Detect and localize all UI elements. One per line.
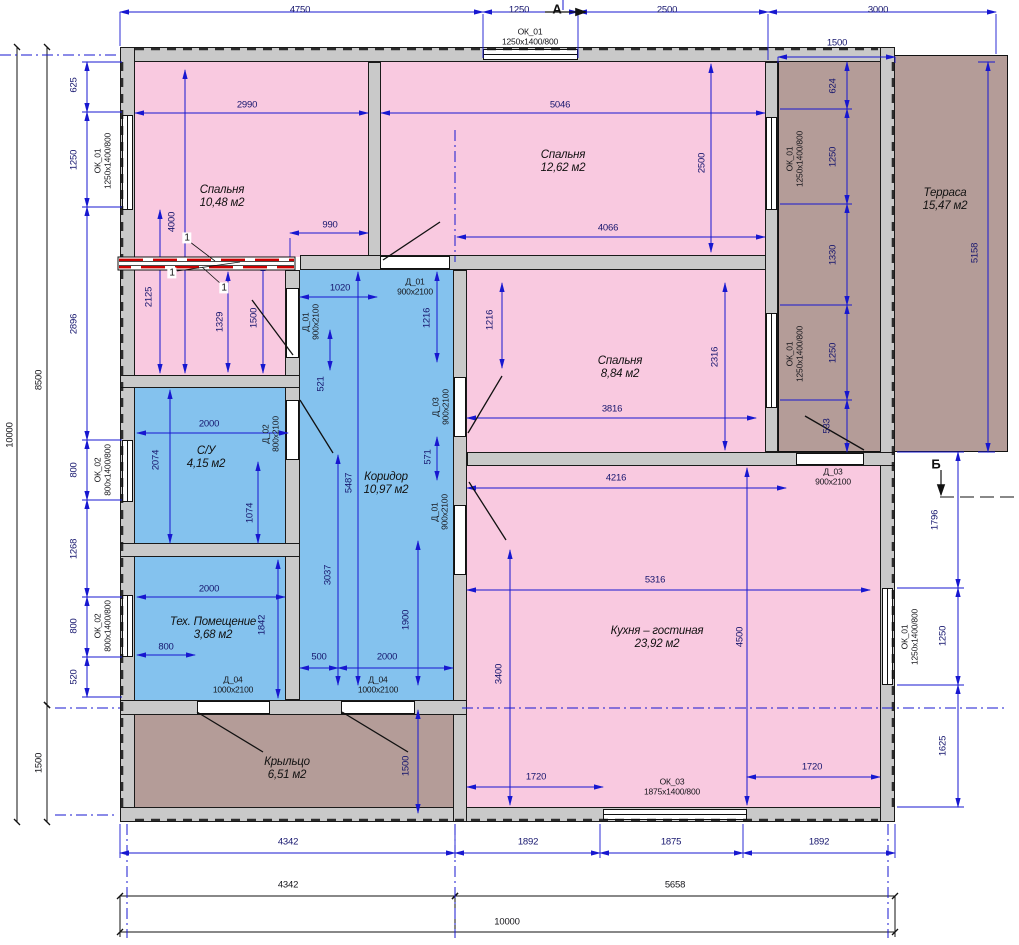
- opening-tag: Д_01 900x2100: [430, 494, 449, 530]
- dim-label: 10000: [6, 422, 17, 447]
- room-label: Спальня 10,48 м2: [200, 184, 245, 210]
- room-label: Тех. Помещение 3,68 м2: [170, 616, 256, 642]
- dim-label: 1250: [939, 626, 950, 646]
- dim-label: 1892: [809, 838, 829, 849]
- dim-label: 800: [70, 462, 81, 477]
- dim-label: 800: [70, 618, 81, 633]
- dim-label: 2125: [145, 287, 156, 307]
- opening-tag: ОК_01 1250x1400/800: [93, 133, 112, 189]
- dim-label: 1250: [70, 150, 81, 170]
- dim-label: 2896: [70, 314, 81, 334]
- dim-label: 2316: [711, 347, 722, 367]
- axis-marker: Б: [931, 458, 940, 473]
- dim-label: 624: [829, 78, 840, 93]
- room-label: Крыльцо 6,51 м2: [264, 756, 310, 782]
- dim-label: 990: [322, 221, 337, 232]
- dim-label: 1842: [258, 615, 269, 635]
- dim-label: 4500: [736, 627, 747, 647]
- dim-label: 1500: [250, 308, 261, 328]
- dim-label: 3400: [495, 664, 506, 684]
- opening-tag: Д_01 900x2100: [397, 277, 433, 296]
- dim-label: 1796: [931, 510, 942, 530]
- dim-label: 5316: [645, 576, 665, 587]
- dim-label: 1074: [246, 503, 257, 523]
- dim-label: 4000: [168, 212, 179, 232]
- dim-label: 4750: [290, 6, 310, 17]
- dim-label: 2074: [152, 450, 163, 470]
- room-label: Кухня – гостиная 23,92 м2: [611, 625, 704, 651]
- opening-tag: ОК_01 1250x1400/800: [785, 131, 804, 187]
- annotations-layer: 4750125025003000АОК_01 1250x1400/8001500…: [0, 0, 1019, 945]
- dim-label: 5487: [345, 473, 356, 493]
- opening-tag: Д_04 1000x2100: [213, 675, 253, 694]
- dim-label: 1330: [829, 245, 840, 265]
- dim-label: 1216: [423, 308, 434, 328]
- room-label: Коридор 10,97 м2: [364, 471, 409, 497]
- dim-label: 1500: [402, 756, 413, 776]
- dim-label: 800: [158, 643, 173, 654]
- dim-label: 1500: [827, 39, 847, 50]
- axis-marker: А: [552, 3, 561, 18]
- dim-label: 1892: [518, 838, 538, 849]
- dim-label: 1625: [939, 736, 950, 756]
- dim-label: 5046: [550, 101, 570, 112]
- dim-label: 1900: [402, 610, 413, 630]
- opening-tag: ОК_01 1250x1400/800: [502, 27, 558, 46]
- room-label: Терраса 15,47 м2: [923, 187, 968, 213]
- opening-tag: Д_03 900x2100: [815, 467, 851, 486]
- dim-label: 2500: [698, 153, 709, 173]
- dim-label: 8500: [35, 370, 46, 390]
- opening-tag: Д_04 1000x2100: [358, 675, 398, 694]
- dim-label: 1250: [829, 147, 840, 167]
- opening-tag: Д_01 900x2100: [301, 304, 320, 340]
- dim-label: 4216: [606, 474, 626, 485]
- room-label: С/У 4,15 м2: [187, 445, 225, 471]
- pos-marker: 1: [182, 232, 191, 243]
- dim-label: 1500: [35, 753, 46, 773]
- dim-label: 2990: [237, 101, 257, 112]
- dim-label: 2000: [199, 585, 219, 596]
- dim-label: 5158: [971, 243, 982, 263]
- dim-label: 10000: [494, 918, 519, 929]
- floor-plan: 4750125025003000АОК_01 1250x1400/8001500…: [0, 0, 1019, 945]
- dim-label: 1720: [526, 773, 546, 784]
- dim-label: 5658: [665, 881, 685, 892]
- dim-label: 1020: [330, 284, 350, 295]
- pos-marker: 1: [219, 282, 228, 293]
- dim-label: 4342: [278, 881, 298, 892]
- dim-label: 2000: [199, 420, 219, 431]
- opening-tag: ОК_02 800x1400/800: [93, 444, 112, 496]
- dim-label: 4342: [278, 838, 298, 849]
- dim-label: 1250: [509, 6, 529, 17]
- dim-label: 571: [424, 449, 435, 464]
- dim-label: 533: [823, 418, 834, 433]
- dim-label: 3037: [324, 565, 335, 585]
- opening-tag: Д_02 800x2100: [261, 416, 280, 452]
- opening-tag: ОК_01 1250x1400/800: [900, 609, 919, 665]
- dim-label: 521: [317, 376, 328, 391]
- opening-tag: ОК_02 800x1400/800: [93, 600, 112, 652]
- room-label: Спальня 12,62 м2: [541, 149, 586, 175]
- dim-label: 2500: [657, 6, 677, 17]
- opening-tag: Д_03 900x2100: [431, 389, 450, 425]
- dim-label: 1875: [661, 838, 681, 849]
- dim-label: 1216: [486, 310, 497, 330]
- dim-label: 3000: [868, 6, 888, 17]
- pos-marker: 1: [167, 267, 176, 278]
- dim-label: 500: [311, 653, 326, 664]
- dim-label: 1329: [216, 312, 227, 332]
- dim-label: 3816: [602, 405, 622, 416]
- dim-label: 625: [70, 77, 81, 92]
- dim-label: 520: [70, 669, 81, 684]
- dim-label: 2000: [377, 653, 397, 664]
- dim-label: 4066: [598, 224, 618, 235]
- dim-label: 1250: [829, 343, 840, 363]
- dim-label: 1720: [802, 763, 822, 774]
- dim-label: 1268: [70, 539, 81, 559]
- opening-tag: ОК_01 1250x1400/800: [785, 326, 804, 382]
- room-label: Спальня 8,84 м2: [598, 355, 643, 381]
- opening-tag: ОК_03 1875x1400/800: [644, 777, 700, 796]
